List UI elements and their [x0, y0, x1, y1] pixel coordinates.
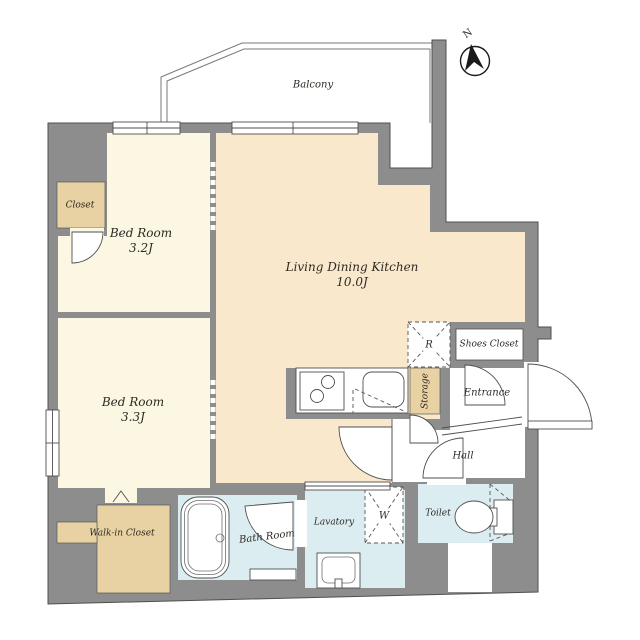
- balcony-label: Balcony: [293, 78, 333, 93]
- toilet-label: Toilet: [425, 507, 450, 522]
- lavatory-label: Lavatory: [314, 516, 354, 531]
- service-recess: [448, 543, 492, 592]
- bedroom-1-name: Bed Room: [110, 226, 172, 241]
- bedroom-2-label: Bed Room 3.3J: [102, 395, 164, 425]
- walk-in-closet-floor: [97, 505, 170, 593]
- kitchen-counter: [286, 368, 410, 419]
- walk-in-closet-label: Walk-in Closet: [89, 527, 154, 542]
- refrigerator-label: R: [423, 338, 435, 353]
- bedroom-1-label: Bed Room 3.2J: [110, 226, 172, 256]
- bedroom-2-area: 3.3J: [102, 410, 164, 425]
- washbasin: [317, 553, 360, 588]
- entrance-door: [528, 364, 592, 429]
- bath-step: [250, 569, 296, 580]
- lavatory-sliding-door: [305, 482, 390, 490]
- floor-plan: Balcony N Closet Bed Room 3.2J Bed Room …: [0, 0, 640, 640]
- ldk-label: Living Dining Kitchen 10.0J: [286, 260, 419, 290]
- bath-door-gap: [295, 500, 307, 547]
- bathtub: [181, 497, 229, 578]
- window-bedroom-1: [113, 122, 180, 134]
- ldk-area: 10.0J: [286, 275, 419, 290]
- entrance-label: Entrance: [464, 386, 510, 401]
- ldk-name: Living Dining Kitchen: [286, 260, 419, 275]
- bedroom-1-area: 3.2J: [110, 241, 172, 256]
- washing-machine-label: W: [377, 509, 391, 524]
- stove-burner-1: [322, 376, 335, 389]
- closet-label: Closet: [66, 199, 95, 214]
- stove-burner-2: [311, 390, 324, 403]
- hall-label: Hall: [452, 449, 473, 464]
- north-compass: [461, 44, 490, 76]
- floor-plan-canvas: [0, 0, 640, 640]
- stove: [300, 372, 344, 410]
- bedroom-2-name: Bed Room: [102, 395, 164, 410]
- storage-label: Storage: [419, 373, 434, 409]
- shoes-closet-label: Shoes Closet: [460, 338, 519, 353]
- toilet-bowl: [455, 500, 513, 534]
- window-bedroom-2: [46, 410, 59, 476]
- window-ldk: [232, 122, 358, 134]
